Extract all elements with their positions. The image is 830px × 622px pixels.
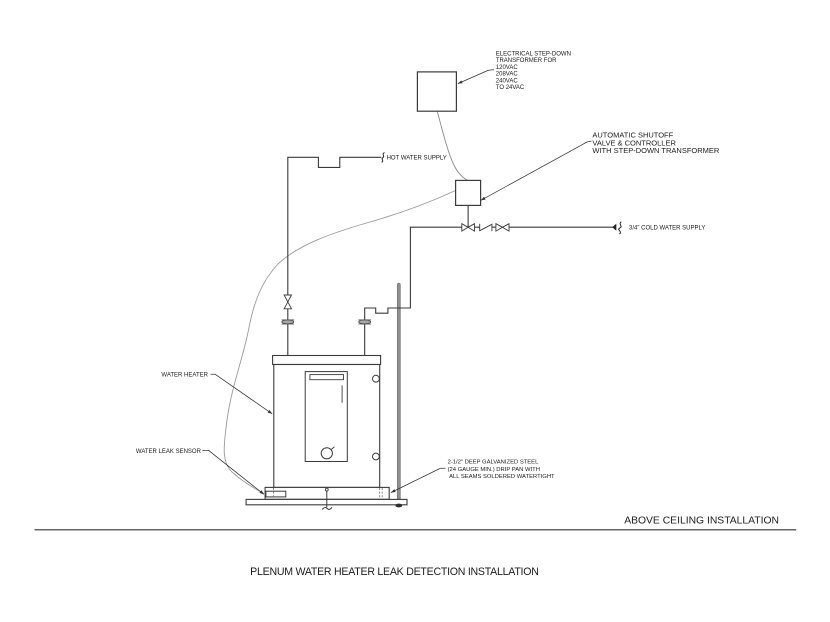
svg-text:WITH STEP-DOWN TRANSFORMER: WITH STEP-DOWN TRANSFORMER [592,146,720,155]
svg-text:TRANSFORMER FOR: TRANSFORMER FOR [496,58,557,64]
svg-text:240VAC: 240VAC [496,78,519,84]
svg-text:ELECTRICAL STEP-DOWN: ELECTRICAL STEP-DOWN [496,52,571,58]
svg-text:WATER LEAK SENSOR: WATER LEAK SENSOR [136,449,202,455]
svg-text:TO 24VAC: TO 24VAC [496,85,525,91]
svg-text:2-1/2" DEEP GALVANIZED STEEL: 2-1/2" DEEP GALVANIZED STEEL [448,460,539,466]
svg-text:PLENUM WATER HEATER LEAK DETEC: PLENUM WATER HEATER LEAK DETECTION INSTA… [250,566,538,578]
svg-text:(24 GAUGE MIN.) DRIP PAN WITH: (24 GAUGE MIN.) DRIP PAN WITH [448,467,540,473]
svg-text:3/4" COLD WATER SUPPLY: 3/4" COLD WATER SUPPLY [629,225,705,231]
svg-text:ALL SEAMS SOLDERED WATERTIGHT: ALL SEAMS SOLDERED WATERTIGHT [449,474,555,480]
svg-text:WATER HEATER: WATER HEATER [161,373,208,379]
svg-text:120VAC: 120VAC [496,65,519,71]
svg-text:208VAC: 208VAC [496,72,519,78]
svg-text:ABOVE CEILING INSTALLATION: ABOVE CEILING INSTALLATION [624,516,779,527]
svg-text:HOT WATER SUPPLY: HOT WATER SUPPLY [387,156,447,162]
